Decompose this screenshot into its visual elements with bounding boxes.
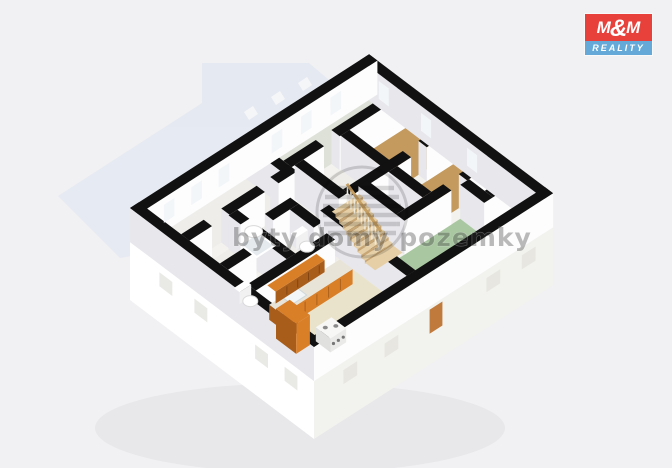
toilet-bowl	[243, 296, 258, 307]
wall-face	[419, 141, 427, 181]
watermark-text: byty domy pozemky	[232, 223, 532, 252]
kitchen-door-joint	[328, 286, 329, 298]
mm-reality-logo: M & M REALITY	[585, 14, 652, 55]
stove-knob	[337, 339, 340, 342]
logo-mm-block: M & M	[585, 14, 652, 41]
logo-m-right: M	[626, 19, 640, 36]
stove-burner	[323, 326, 328, 330]
logo-ampersand: &	[610, 17, 627, 41]
stove-burner	[333, 324, 338, 328]
logo-reality-text: REALITY	[592, 44, 645, 53]
logo-reality-block: REALITY	[585, 41, 652, 55]
kitchen-upper-joint	[297, 279, 298, 288]
kitchen-door-joint	[340, 279, 341, 291]
logo-m-left: M	[597, 19, 611, 36]
wall-face	[221, 209, 229, 249]
kitchen-upper-joint	[308, 272, 309, 281]
floorplan-screenshot: byty domy pozemky M & M REALITY	[0, 0, 672, 468]
kitchen-door-joint	[316, 294, 317, 306]
stove-knob	[332, 342, 335, 345]
floorplan-3d-render: byty domy pozemky	[0, 0, 672, 468]
wall-face	[314, 341, 323, 381]
kitchen-upper-joint	[319, 265, 320, 274]
stove-knob	[342, 336, 345, 339]
wall-face	[331, 130, 339, 170]
kitchen-upper-joint	[286, 286, 287, 295]
